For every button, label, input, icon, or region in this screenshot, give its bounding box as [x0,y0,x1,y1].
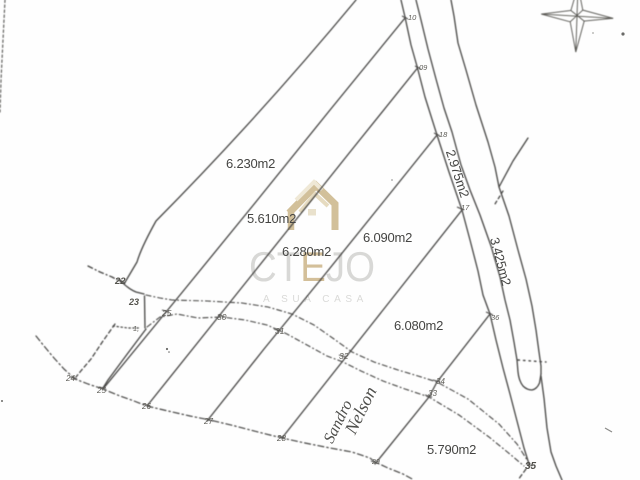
svg-text:A SUA CASA: A SUA CASA [263,294,368,305]
